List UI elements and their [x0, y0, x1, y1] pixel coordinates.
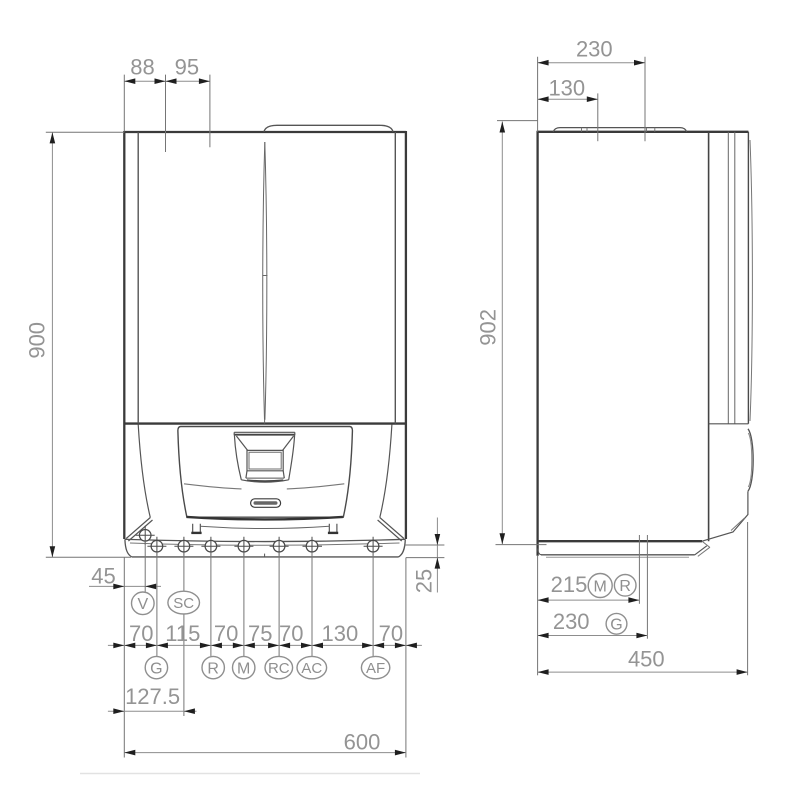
svg-text:900: 900 [24, 322, 49, 359]
svg-text:M: M [237, 660, 250, 677]
svg-text:G: G [150, 660, 162, 677]
svg-text:70: 70 [129, 621, 153, 646]
svg-text:230: 230 [553, 609, 590, 634]
svg-text:902: 902 [475, 309, 500, 346]
svg-text:M: M [594, 578, 607, 595]
svg-text:AC: AC [301, 660, 322, 677]
svg-text:115: 115 [165, 621, 200, 646]
svg-text:600: 600 [344, 730, 381, 755]
svg-text:SC: SC [173, 595, 194, 612]
svg-text:215: 215 [551, 572, 588, 597]
svg-text:127.5: 127.5 [125, 684, 180, 709]
svg-text:RC: RC [268, 660, 290, 677]
svg-text:130: 130 [322, 621, 359, 646]
svg-text:450: 450 [628, 647, 665, 672]
svg-text:70: 70 [379, 621, 403, 646]
svg-text:25: 25 [411, 569, 436, 593]
svg-text:70: 70 [279, 621, 303, 646]
svg-text:75: 75 [248, 621, 272, 646]
svg-text:AF: AF [366, 660, 385, 677]
svg-text:95: 95 [175, 55, 199, 80]
svg-text:R: R [207, 660, 219, 677]
svg-text:R: R [619, 578, 631, 595]
svg-text:88: 88 [130, 55, 154, 80]
svg-text:45: 45 [91, 564, 115, 589]
svg-text:70: 70 [214, 621, 238, 646]
svg-text:230: 230 [576, 37, 613, 62]
svg-text:G: G [610, 617, 622, 634]
svg-text:V: V [137, 596, 148, 613]
svg-text:130: 130 [548, 75, 585, 100]
